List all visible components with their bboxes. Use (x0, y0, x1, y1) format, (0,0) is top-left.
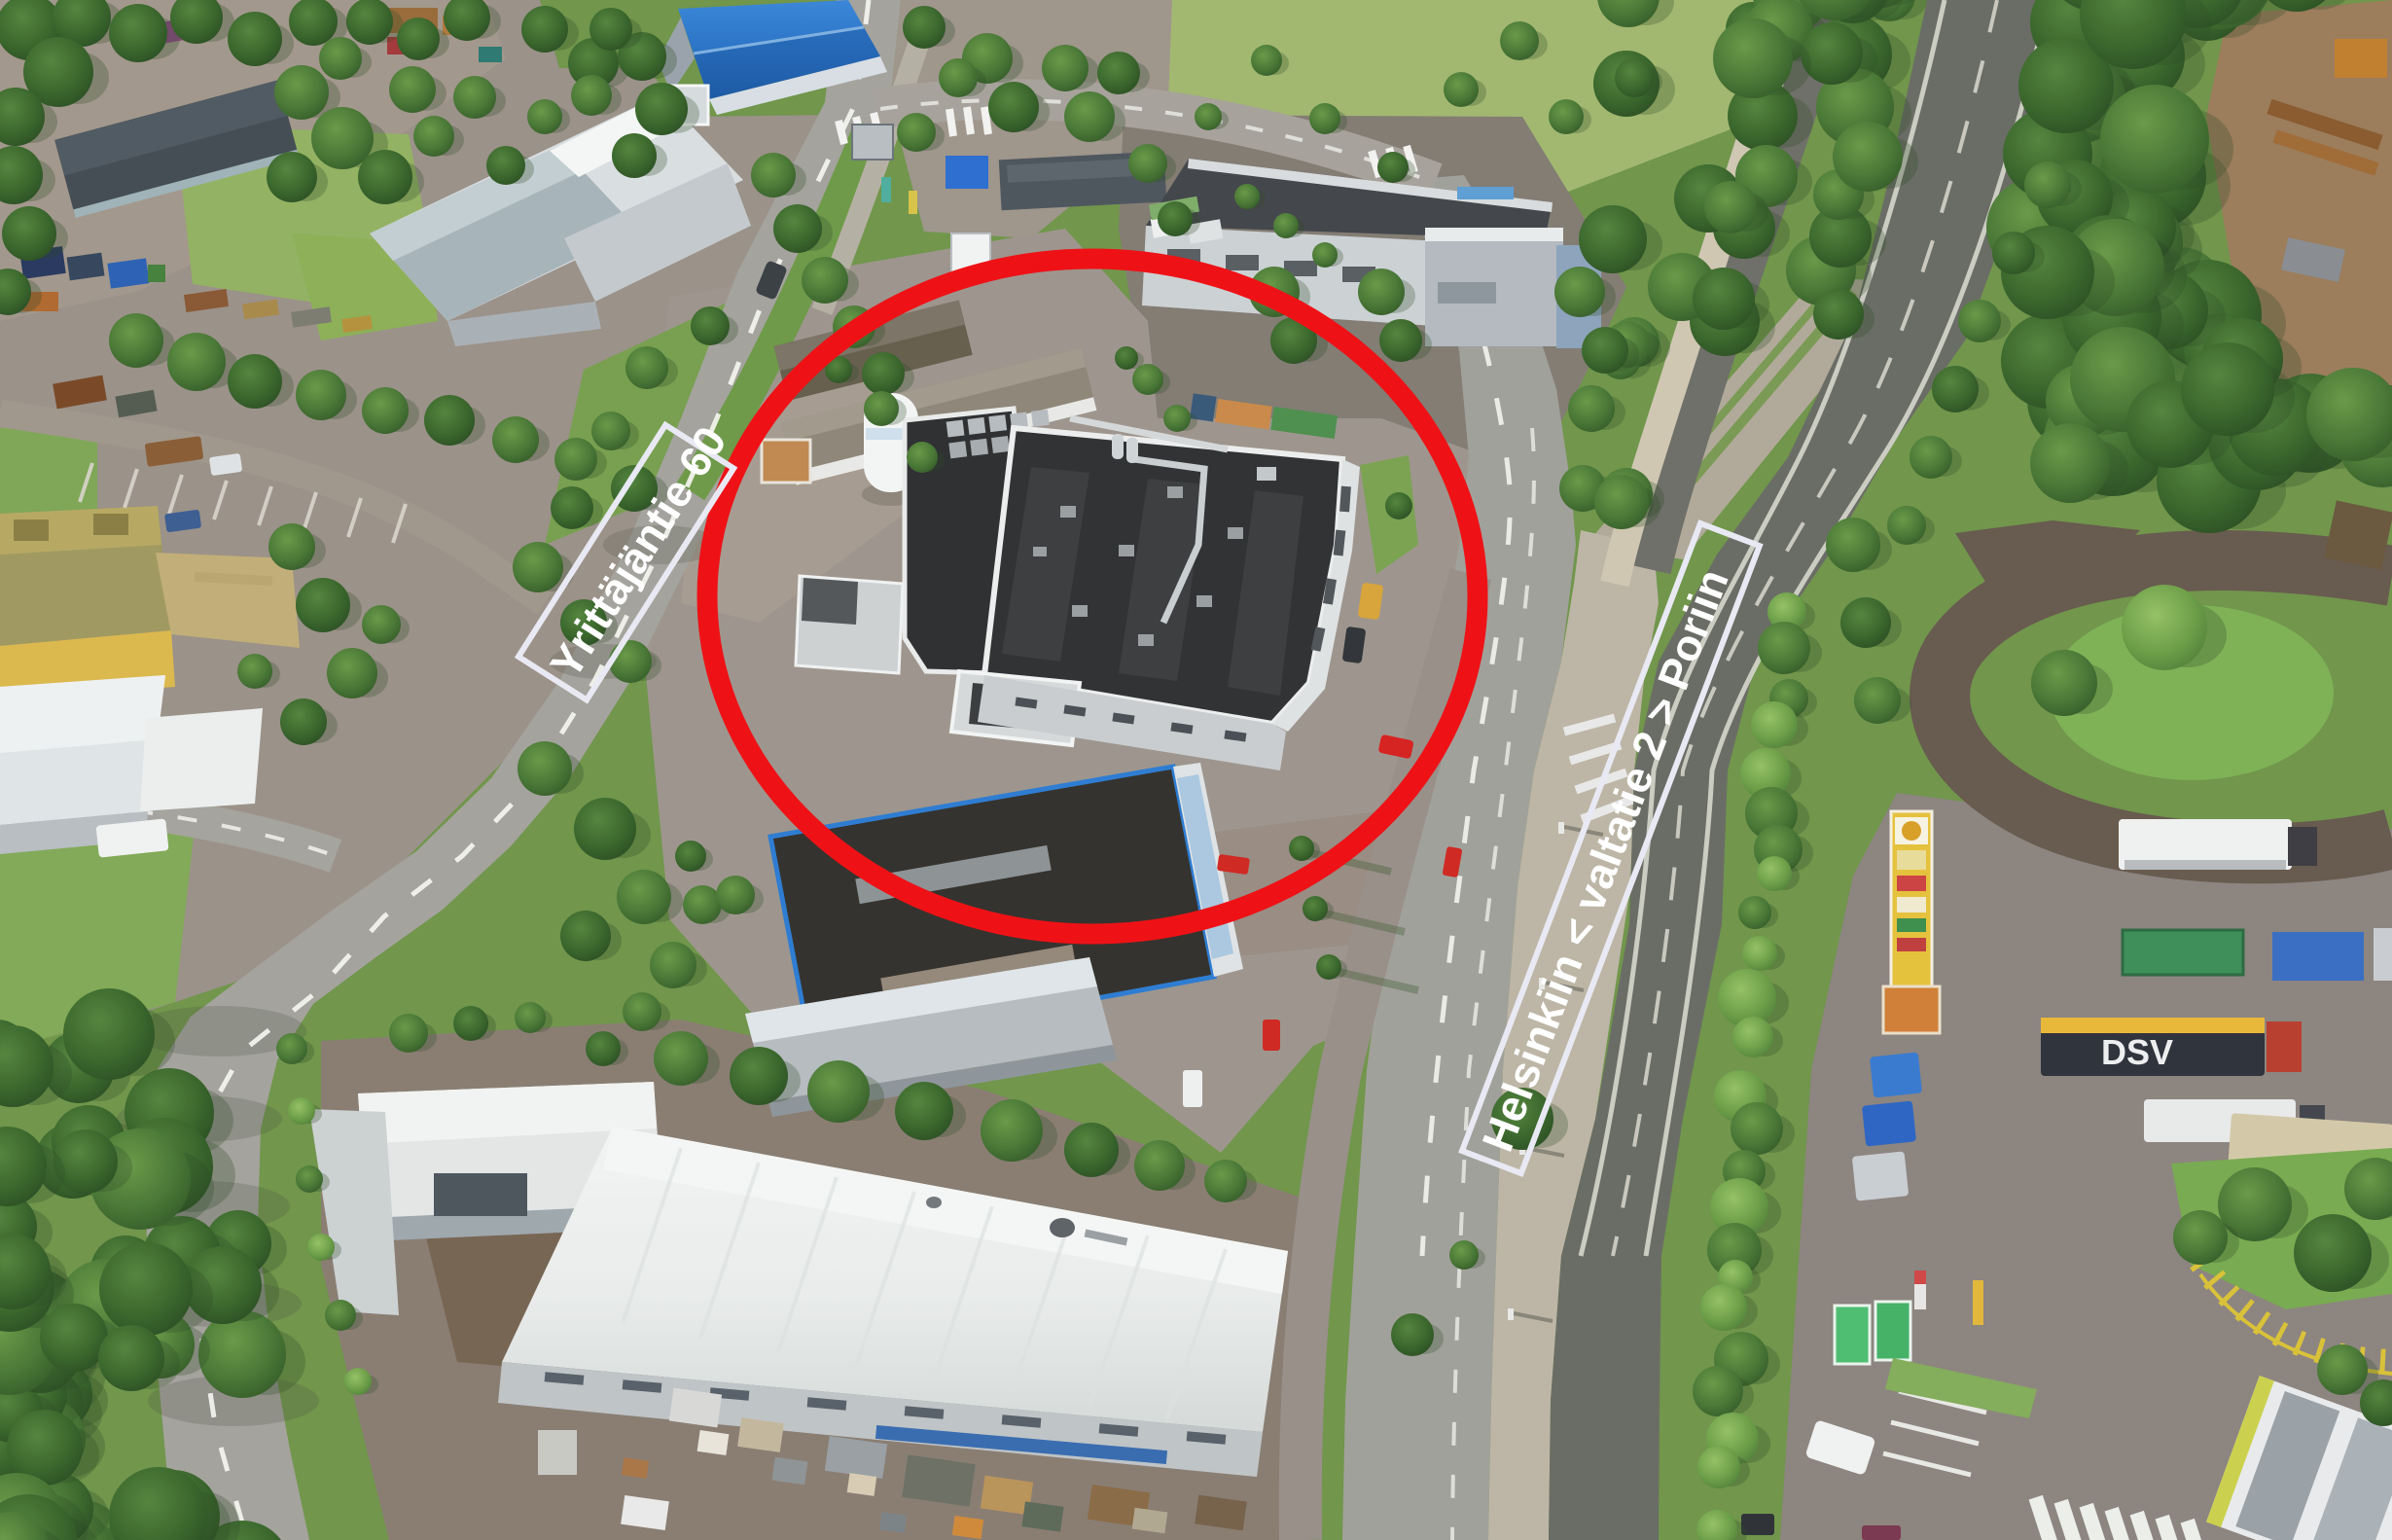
svg-text:DSV: DSV (2101, 1032, 2173, 1072)
